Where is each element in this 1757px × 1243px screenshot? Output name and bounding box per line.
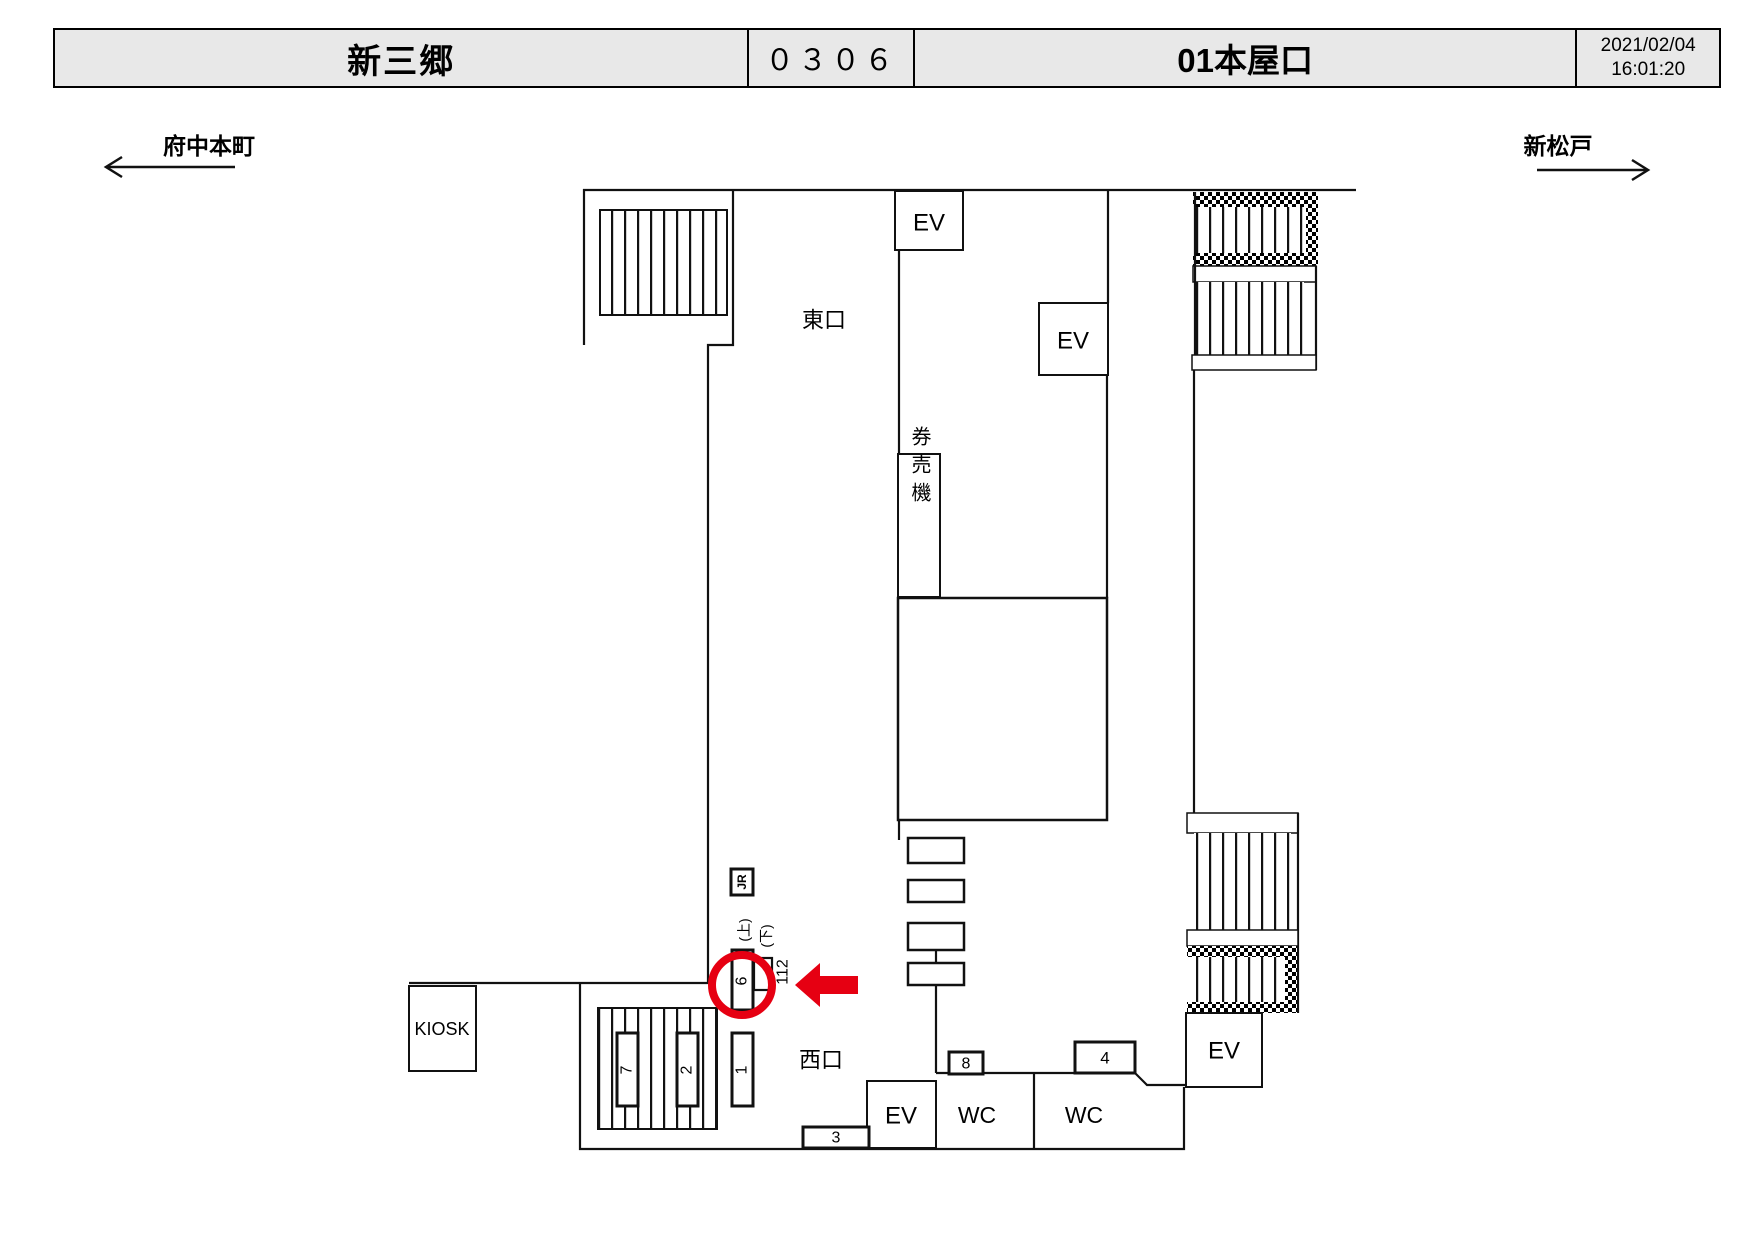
highlight-arrow-icon bbox=[795, 963, 858, 1007]
paid-area-room bbox=[898, 598, 1107, 820]
kiosk-box: KIOSK bbox=[409, 986, 476, 1071]
floor-plan: 府中本町 新松戸 bbox=[0, 0, 1757, 1243]
ad-board-1-label: 1 bbox=[734, 1065, 751, 1074]
jr-mark-box: JR bbox=[731, 869, 753, 895]
jr-mark-label: JR bbox=[735, 874, 749, 890]
ad-board-7-label: 7 bbox=[619, 1065, 636, 1074]
stairs-middle-right bbox=[1187, 813, 1298, 1013]
toilet-label-1: WC bbox=[958, 1102, 996, 1128]
ticket-machine-box: 券売機 bbox=[898, 426, 940, 597]
ad-board-3-label: 3 bbox=[832, 1130, 841, 1147]
ad-board-4: 4 bbox=[1075, 1042, 1135, 1073]
stairs-top-left bbox=[600, 210, 727, 315]
direction-right: 新松戸 bbox=[1524, 133, 1649, 180]
fare-gate-boxes bbox=[908, 838, 964, 985]
elevator-3: EV bbox=[867, 1081, 936, 1148]
ad-board-1: 1 bbox=[732, 1033, 753, 1106]
ad-board-2: 2 bbox=[677, 1033, 698, 1106]
elevator-3-label: EV bbox=[885, 1103, 917, 1130]
kiosk-label: KIOSK bbox=[414, 1019, 469, 1039]
toilet-label-2: WC bbox=[1065, 1102, 1103, 1128]
stairs-top-right bbox=[1192, 192, 1318, 370]
east-exit-label: 東口 bbox=[802, 308, 846, 333]
down-label: (下) bbox=[758, 924, 774, 947]
ad-board-4-label: 4 bbox=[1100, 1049, 1109, 1068]
elevator-4-label: EV bbox=[1208, 1038, 1240, 1065]
elevator-1-label: EV bbox=[913, 210, 945, 237]
ad-board-8: 8 bbox=[949, 1052, 983, 1074]
ad-board-6-label: 6 bbox=[734, 976, 751, 985]
up-label: (上) bbox=[736, 918, 752, 941]
direction-left-label: 府中本町 bbox=[163, 133, 255, 159]
ad-board-3: 3 bbox=[803, 1127, 869, 1148]
station-map-page: 新三郷 ０３０６ 01本屋口 2021/02/04 16:01:20 bbox=[0, 0, 1757, 1243]
ad-board-8-label: 8 bbox=[962, 1056, 971, 1073]
direction-left: 府中本町 bbox=[106, 133, 255, 177]
arrow-left-icon bbox=[106, 157, 235, 177]
direction-right-label: 新松戸 bbox=[1524, 133, 1593, 159]
location-code-label: 112 bbox=[775, 959, 792, 985]
west-exit-label: 西口 bbox=[799, 1048, 843, 1073]
elevator-4: EV bbox=[1186, 1013, 1262, 1087]
elevator-2: EV bbox=[1039, 303, 1108, 375]
elevator-2-label: EV bbox=[1057, 328, 1089, 355]
elevator-1: EV bbox=[895, 191, 963, 250]
arrow-right-icon bbox=[1537, 160, 1648, 180]
ticket-machine-label: 券売機 bbox=[908, 426, 931, 510]
ad-board-2-label: 2 bbox=[679, 1065, 696, 1074]
ad-board-7: 7 bbox=[617, 1033, 638, 1106]
